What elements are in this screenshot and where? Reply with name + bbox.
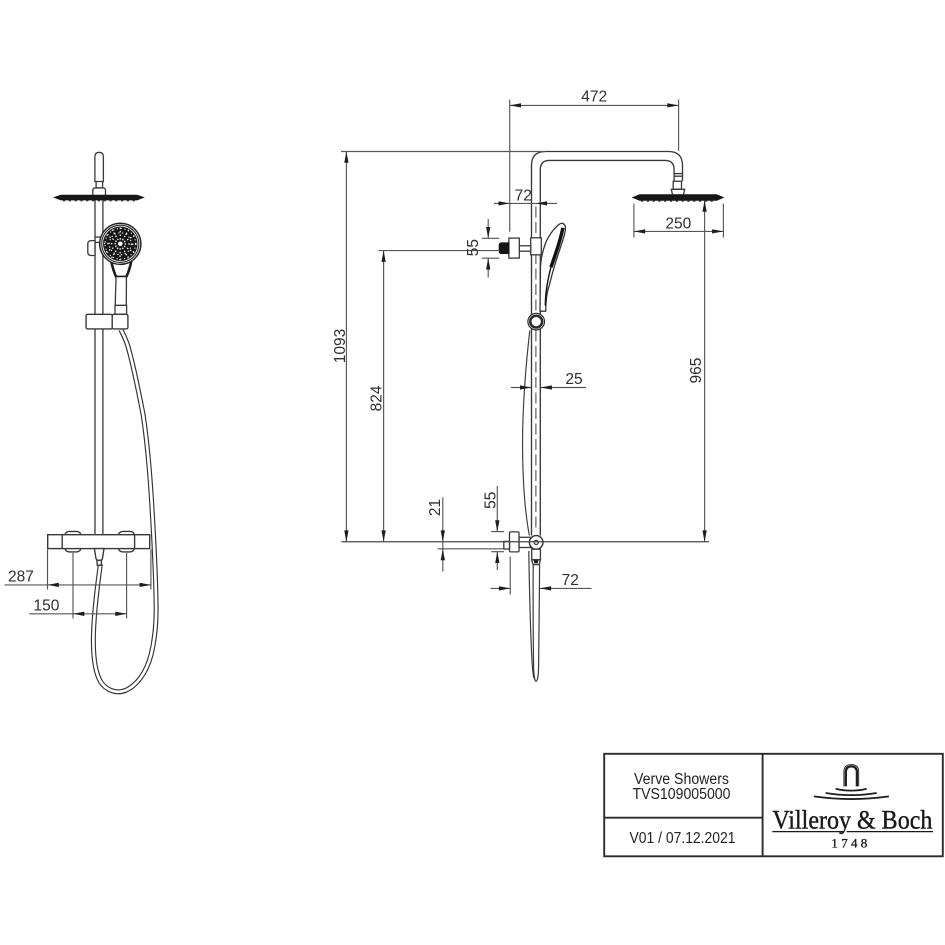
svg-text:V01 / 07.12.2021: V01 / 07.12.2021 (630, 830, 736, 847)
svg-text:965: 965 (688, 358, 705, 384)
svg-text:55: 55 (482, 492, 499, 509)
svg-text:472: 472 (581, 89, 607, 106)
svg-text:Villeroy & Boch: Villeroy & Boch (772, 805, 932, 834)
svg-text:21: 21 (427, 499, 444, 516)
svg-text:150: 150 (34, 597, 60, 614)
svg-text:1748: 1748 (831, 835, 870, 850)
svg-text:TVS109005000: TVS109005000 (633, 786, 731, 803)
svg-text:72: 72 (515, 187, 532, 204)
svg-text:1093: 1093 (332, 329, 349, 363)
svg-text:250: 250 (665, 215, 691, 232)
svg-text:25: 25 (565, 371, 582, 388)
svg-text:55: 55 (465, 239, 482, 256)
svg-text:72: 72 (562, 572, 579, 589)
svg-text:824: 824 (369, 385, 386, 411)
svg-text:287: 287 (8, 568, 34, 585)
